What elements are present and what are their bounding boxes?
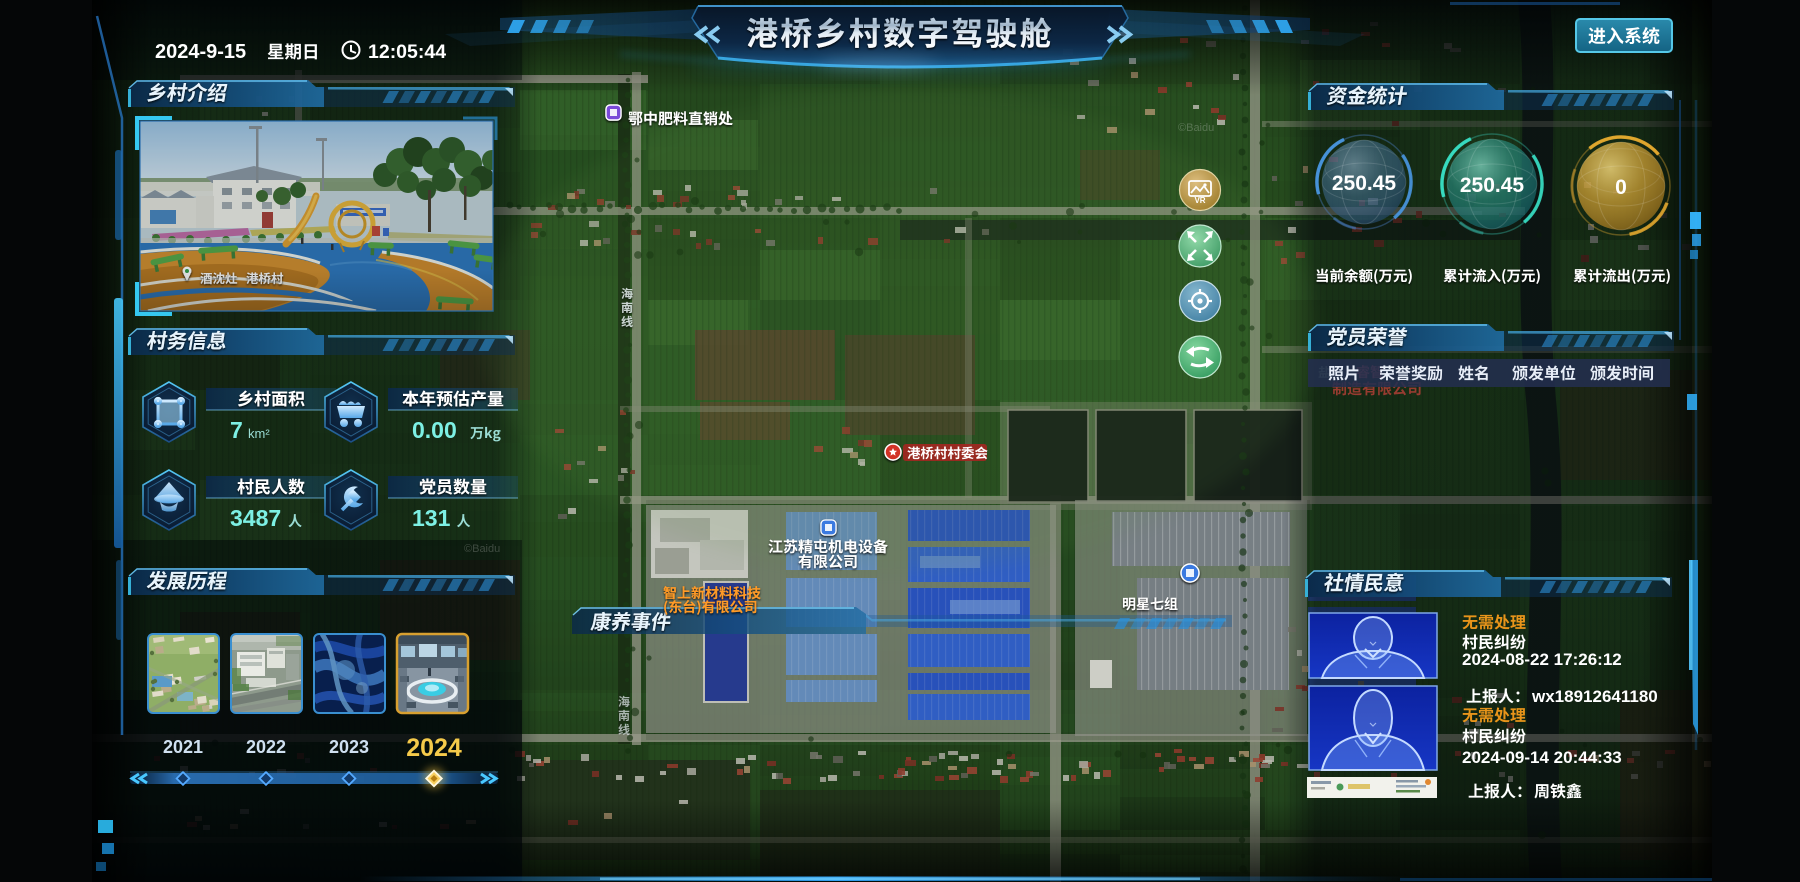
svg-text:VR: VR: [1194, 196, 1205, 205]
svg-text:wx18912641180: wx18912641180: [1531, 687, 1658, 706]
svg-text:131: 131: [412, 505, 451, 531]
svg-text:0: 0: [1615, 176, 1627, 199]
svg-text:©Baidu: ©Baidu: [1178, 122, 1214, 134]
svg-text:2024-9-15: 2024-9-15: [155, 41, 246, 63]
svg-text:2024-09-14 20:44:33: 2024-09-14 20:44:33: [1462, 748, 1622, 767]
svg-text:2024-08-22 17:26:12: 2024-08-22 17:26:12: [1462, 650, 1622, 669]
svg-text:2021: 2021: [163, 737, 203, 757]
svg-text:km²: km²: [248, 426, 270, 441]
svg-text:3487: 3487: [230, 505, 281, 531]
svg-text:250.45: 250.45: [1460, 174, 1525, 197]
svg-text:12:05:44: 12:05:44: [368, 41, 446, 63]
svg-text:2023: 2023: [329, 737, 369, 757]
svg-text:2022: 2022: [246, 737, 286, 757]
svg-text:2024: 2024: [406, 734, 462, 762]
svg-text:250.45: 250.45: [1332, 172, 1397, 195]
svg-text:0.00: 0.00: [412, 417, 457, 443]
svg-text:7: 7: [230, 417, 243, 443]
svg-text:©Baidu: ©Baidu: [464, 543, 500, 555]
